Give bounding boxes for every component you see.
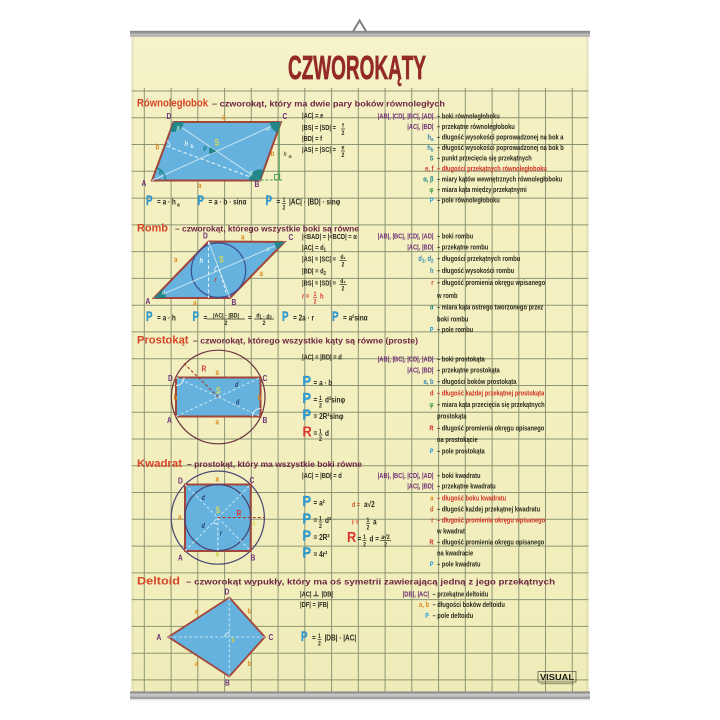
svg-text:b: b bbox=[248, 608, 252, 616]
svg-text:w kwadrat: w kwadrat bbox=[436, 528, 465, 536]
svg-text:A: A bbox=[156, 632, 161, 642]
svg-text:B: B bbox=[225, 678, 230, 688]
svg-text:P: P bbox=[302, 492, 311, 509]
svg-text:P: P bbox=[302, 509, 311, 526]
svg-text:Równoległobok: Równoległobok bbox=[137, 98, 209, 110]
svg-text:|AC| = |BD| = d: |AC| = |BD| = d bbox=[302, 472, 342, 480]
svg-text:α, β: α, β bbox=[423, 176, 433, 184]
svg-text:|AC|, |BD|: |AC|, |BD| bbox=[407, 483, 433, 491]
svg-text:α: α bbox=[430, 304, 434, 312]
svg-text:– przekątne rombu: – przekątne rombu bbox=[437, 244, 488, 252]
svg-text:α: α bbox=[267, 247, 270, 254]
svg-text:D: D bbox=[178, 476, 183, 486]
svg-text:– długość promienia okręgu wpi: – długość promienia okręgu wpisanego bbox=[437, 280, 545, 288]
svg-text:A: A bbox=[178, 553, 183, 563]
svg-text:e, f: e, f bbox=[425, 166, 434, 174]
svg-text:d²sinφ: d²sinφ bbox=[325, 395, 346, 405]
svg-text:– długości boków deltoidu: – długości boków deltoidu bbox=[433, 602, 505, 610]
svg-text:|AC| · |BD| · sinφ: |AC| · |BD| · sinφ bbox=[289, 197, 341, 207]
svg-text:=: = bbox=[313, 428, 317, 438]
svg-text:P: P bbox=[430, 326, 434, 334]
svg-text:r: r bbox=[431, 517, 434, 525]
svg-text:R: R bbox=[302, 422, 311, 439]
svg-text:|<BAD| = |<BCD| = α: |<BAD| = |<BCD| = α bbox=[302, 233, 357, 241]
svg-text:CZWOROKĄTY: CZWOROKĄTY bbox=[288, 49, 426, 86]
svg-text:S: S bbox=[430, 155, 434, 163]
svg-text:Deltoid: Deltoid bbox=[137, 576, 180, 588]
svg-text:– miara kąta ostrego tworzoneg: – miara kąta ostrego tworzonego przez bbox=[437, 304, 544, 312]
svg-text:B: B bbox=[263, 415, 268, 425]
svg-text:=: = bbox=[313, 515, 317, 525]
svg-text:– boki rombu: – boki rombu bbox=[437, 233, 473, 241]
svg-text:R: R bbox=[201, 364, 206, 374]
svg-text:|AB|, |BC|, |CD|, |AD|: |AB|, |BC|, |CD|, |AD| bbox=[378, 472, 434, 480]
svg-text:– przekątne równoległoboku: – przekątne równoległoboku bbox=[437, 124, 515, 132]
svg-text:|AB|, |CD|, |BC|, |AD|: |AB|, |CD|, |BC|, |AD| bbox=[378, 113, 434, 121]
svg-text:– przekątne deltoidu: – przekątne deltoidu bbox=[433, 591, 489, 599]
svg-text:|DB|: |DB| bbox=[322, 591, 334, 599]
svg-text:– długość promienia okręgu opi: – długość promienia okręgu opisanego bbox=[437, 539, 544, 547]
svg-text:C: C bbox=[283, 111, 288, 121]
svg-text:P: P bbox=[302, 526, 311, 543]
svg-text:A: A bbox=[167, 415, 172, 425]
svg-text:B: B bbox=[231, 297, 236, 307]
svg-text:C: C bbox=[263, 373, 268, 383]
svg-text:B: B bbox=[254, 179, 259, 189]
svg-text:b: b bbox=[270, 149, 274, 158]
svg-text:b: b bbox=[248, 660, 252, 668]
svg-text:b: b bbox=[258, 393, 262, 402]
svg-text:= a · h: = a · h bbox=[157, 197, 176, 207]
svg-text:α: α bbox=[267, 126, 270, 133]
svg-text:=: = bbox=[204, 313, 208, 323]
svg-text:D: D bbox=[168, 373, 173, 383]
svg-text:α: α bbox=[162, 290, 165, 297]
svg-text:P: P bbox=[302, 405, 311, 422]
svg-text:na prostokącie: na prostokącie bbox=[437, 436, 478, 444]
svg-text:=: = bbox=[313, 395, 317, 405]
svg-text:S: S bbox=[219, 255, 224, 265]
svg-text:D: D bbox=[166, 111, 171, 121]
svg-text:d: d bbox=[201, 494, 204, 502]
svg-text:– długości boków prostokąta: – długości boków prostokąta bbox=[437, 378, 517, 386]
svg-text:P: P bbox=[430, 197, 434, 205]
svg-text:=: = bbox=[248, 313, 252, 323]
svg-text:|BD| = f: |BD| = f bbox=[302, 135, 323, 143]
svg-text:P: P bbox=[302, 389, 311, 406]
svg-text:|AS| = |SC| =: |AS| = |SC| = bbox=[302, 146, 336, 154]
svg-text:R: R bbox=[429, 539, 433, 547]
svg-text:– pole rombu: – pole rombu bbox=[437, 326, 473, 334]
svg-text:φ: φ bbox=[203, 144, 207, 152]
svg-text:P: P bbox=[198, 194, 205, 209]
svg-text:φ: φ bbox=[429, 401, 433, 409]
svg-text:a√2: a√2 bbox=[364, 499, 375, 509]
svg-text:a: a bbox=[195, 660, 198, 668]
svg-text:P: P bbox=[146, 310, 153, 325]
svg-text:– czworokąt, którego wszystkie: – czworokąt, którego wszystkie kąty są r… bbox=[193, 336, 418, 346]
svg-text:|DB|, |AC|: |DB|, |AC| bbox=[403, 591, 429, 599]
svg-text:– boki prostokąta: – boki prostokąta bbox=[437, 356, 485, 364]
svg-text:r =: r = bbox=[302, 293, 309, 301]
svg-text:= a · h: = a · h bbox=[157, 313, 176, 323]
svg-text:– pole równoległoboku: – pole równoległoboku bbox=[437, 197, 500, 205]
svg-text:=: = bbox=[357, 534, 361, 544]
svg-text:– przekątne kwadratu: – przekątne kwadratu bbox=[437, 483, 496, 491]
svg-text:r =: r = bbox=[352, 519, 359, 527]
svg-text:|DF| = |FB|: |DF| = |FB| bbox=[300, 602, 329, 610]
svg-text:– długość promienia okręgu wpi: – długość promienia okręgu wpisanego bbox=[437, 517, 545, 525]
svg-text:d: d bbox=[325, 428, 329, 438]
svg-text:= a · b: = a · b bbox=[313, 378, 332, 388]
svg-text:P: P bbox=[302, 543, 311, 560]
svg-text:P: P bbox=[430, 561, 434, 569]
svg-text:– miara kąta przecięcia się pr: – miara kąta przecięcia się przekątnych bbox=[437, 401, 545, 409]
svg-text:|DB| · |AC|: |DB| · |AC| bbox=[325, 633, 357, 643]
svg-text:φ: φ bbox=[429, 187, 433, 195]
svg-text:D: D bbox=[224, 587, 229, 597]
svg-text:S: S bbox=[216, 386, 221, 396]
svg-text:β: β bbox=[249, 171, 253, 178]
svg-text:– pole kwadratu: – pole kwadratu bbox=[437, 561, 481, 569]
svg-text:|AB|, |BC|, |CD|, |AD|: |AB|, |BC|, |CD|, |AD| bbox=[378, 356, 434, 364]
svg-text:= a²: = a² bbox=[313, 498, 325, 508]
svg-text:C: C bbox=[249, 475, 254, 485]
svg-text:|AC| = |BD| = d: |AC| = |BD| = d bbox=[302, 354, 342, 362]
svg-text:A: A bbox=[141, 178, 146, 188]
svg-text:S: S bbox=[214, 138, 219, 148]
svg-text:h: h bbox=[185, 140, 189, 148]
svg-text:a: a bbox=[430, 495, 433, 503]
svg-text:P: P bbox=[282, 310, 289, 325]
svg-text:a: a bbox=[177, 203, 180, 209]
svg-text:– pole deltoidu: – pole deltoidu bbox=[433, 612, 474, 620]
svg-text:P: P bbox=[192, 310, 199, 325]
svg-text:– punkt przecięcia się przekąt: – punkt przecięcia się przekątnych bbox=[437, 155, 532, 163]
svg-text:– długość każdej przekątnej kw: – długość każdej przekątnej kwadratu bbox=[437, 506, 540, 514]
svg-text:P: P bbox=[302, 372, 311, 389]
svg-text:– prostokąt, który ma wszystki: – prostokąt, który ma wszystkie boki rów… bbox=[187, 459, 362, 469]
svg-text:– długość boku kwadratu: – długość boku kwadratu bbox=[437, 495, 506, 503]
svg-text:– długość wysokości poprowadzo: – długość wysokości poprowadzonej na bok… bbox=[437, 145, 564, 153]
svg-text:VISUAL: VISUAL bbox=[540, 672, 574, 682]
svg-text:|AS| = |SC| =: |AS| = |SC| = bbox=[302, 256, 336, 264]
svg-text:b: b bbox=[156, 143, 160, 152]
svg-text:= a · b · sinα: = a · b · sinα bbox=[209, 197, 247, 207]
svg-text:– długość wysokości poprowadzo: – długość wysokości poprowadzonej na bok… bbox=[437, 134, 564, 142]
svg-text:d: d bbox=[430, 390, 434, 398]
svg-text:– przekątne prostokąta: – przekątne prostokąta bbox=[437, 367, 500, 375]
svg-text:P: P bbox=[301, 630, 308, 645]
svg-text:R: R bbox=[429, 425, 433, 433]
svg-text:P: P bbox=[425, 612, 429, 620]
svg-text:= a²sinα: = a²sinα bbox=[343, 313, 368, 323]
svg-text:|AC|, |BD|: |AC|, |BD| bbox=[407, 367, 433, 375]
svg-text:|AC| = e: |AC| = e bbox=[302, 112, 324, 120]
svg-text:na kwadracie: na kwadracie bbox=[437, 550, 473, 558]
svg-text:d: d bbox=[236, 399, 239, 407]
svg-text:– miara kąta między przekątnym: – miara kąta między przekątnymi bbox=[437, 187, 527, 195]
svg-text:r: r bbox=[431, 280, 434, 288]
svg-text:– długość każdej przekątnej pr: – długość każdej przekątnej prostokąta bbox=[437, 390, 545, 398]
svg-text:– czworokąt wypukły, który ma: – czworokąt wypukły, który ma oś symetri… bbox=[186, 577, 555, 587]
svg-text:= 2R²sinφ: = 2R²sinφ bbox=[313, 411, 344, 421]
svg-text:b: b bbox=[174, 393, 178, 402]
svg-text:B: B bbox=[250, 553, 255, 563]
svg-text:a√2: a√2 bbox=[381, 533, 390, 541]
svg-text:– czworokąt, który ma dwie par: – czworokąt, który ma dwie pary boków ró… bbox=[212, 99, 445, 109]
svg-text:– boki równoległoboku: – boki równoległoboku bbox=[437, 113, 500, 121]
svg-text:=: = bbox=[312, 633, 316, 643]
svg-text:Romb: Romb bbox=[137, 223, 168, 235]
svg-text:a, b: a, b bbox=[424, 378, 434, 386]
svg-text:C: C bbox=[288, 232, 293, 242]
svg-text:h: h bbox=[320, 293, 324, 301]
svg-text:|AC|, |BD|: |AC|, |BD| bbox=[407, 244, 433, 252]
svg-text:d: d bbox=[430, 506, 434, 514]
svg-text:S: S bbox=[215, 505, 220, 515]
svg-text:P: P bbox=[332, 310, 339, 325]
svg-text:|AC| = d1: |AC| = d1 bbox=[302, 244, 326, 253]
svg-text:D: D bbox=[203, 231, 208, 241]
svg-text:– pole prostokąta: – pole prostokąta bbox=[437, 448, 485, 456]
svg-text:w romb: w romb bbox=[436, 293, 457, 301]
svg-text:P: P bbox=[430, 448, 434, 456]
svg-text:Kwadrat: Kwadrat bbox=[137, 458, 182, 470]
svg-text:– długość wysokości rombu: – długość wysokości rombu bbox=[437, 268, 514, 276]
svg-text:|AC|: |AC| bbox=[300, 591, 312, 599]
svg-text:= 2R²: = 2R² bbox=[313, 532, 329, 542]
svg-text:|AC|, |BD|: |AC|, |BD| bbox=[407, 124, 433, 132]
svg-text:P: P bbox=[266, 194, 273, 209]
svg-text:A: A bbox=[146, 296, 151, 306]
svg-text:b: b bbox=[191, 144, 194, 150]
svg-text:– boki kwadratu: – boki kwadratu bbox=[437, 472, 481, 480]
svg-text:β: β bbox=[176, 126, 180, 133]
svg-text:|BS| = |SD| =: |BS| = |SD| = bbox=[302, 280, 336, 288]
svg-text:– długości przekątnych równole: – długości przekątnych równoległoboku bbox=[437, 166, 547, 174]
svg-text:|BD| = d2: |BD| = d2 bbox=[302, 268, 326, 277]
svg-text:– miary kątów wewnętrznych rów: – miary kątów wewnętrznych równoległobok… bbox=[437, 176, 562, 184]
svg-text:P: P bbox=[146, 194, 153, 209]
svg-text:a, b: a, b bbox=[419, 602, 429, 610]
svg-text:h: h bbox=[283, 152, 286, 159]
svg-text:h: h bbox=[200, 257, 204, 265]
svg-text:R: R bbox=[347, 528, 356, 545]
svg-text:C: C bbox=[268, 632, 273, 642]
svg-text:h: h bbox=[430, 268, 434, 276]
svg-text:boki rombu: boki rombu bbox=[437, 316, 468, 324]
svg-text:prostokąta: prostokąta bbox=[437, 413, 467, 421]
svg-text:d: d bbox=[235, 381, 238, 389]
svg-text:|AB|, |BC|, |CD|, |AD|: |AB|, |BC|, |CD|, |AD| bbox=[378, 233, 434, 241]
svg-text:d: d bbox=[201, 522, 204, 530]
svg-text:= 4r²: = 4r² bbox=[313, 549, 327, 559]
svg-text:2: 2 bbox=[314, 299, 317, 306]
svg-text:Prostokąt: Prostokąt bbox=[137, 335, 189, 347]
svg-text:– długości przekątnych rombu: – długości przekątnych rombu bbox=[437, 255, 520, 263]
svg-text:a: a bbox=[195, 608, 198, 616]
svg-text:= 2a · r: = 2a · r bbox=[293, 313, 314, 323]
svg-text:|BS| = |SD| =: |BS| = |SD| = bbox=[302, 124, 336, 132]
svg-text:d²: d² bbox=[325, 515, 332, 525]
svg-text:F: F bbox=[231, 637, 234, 645]
svg-text:d =: d = bbox=[370, 534, 380, 544]
svg-text:d =: d = bbox=[352, 501, 360, 509]
svg-text:R: R bbox=[237, 508, 242, 518]
svg-text:– długość promienia okręgu opi: – długość promienia okręgu opisanego bbox=[437, 425, 544, 433]
svg-text:=: = bbox=[277, 197, 281, 207]
